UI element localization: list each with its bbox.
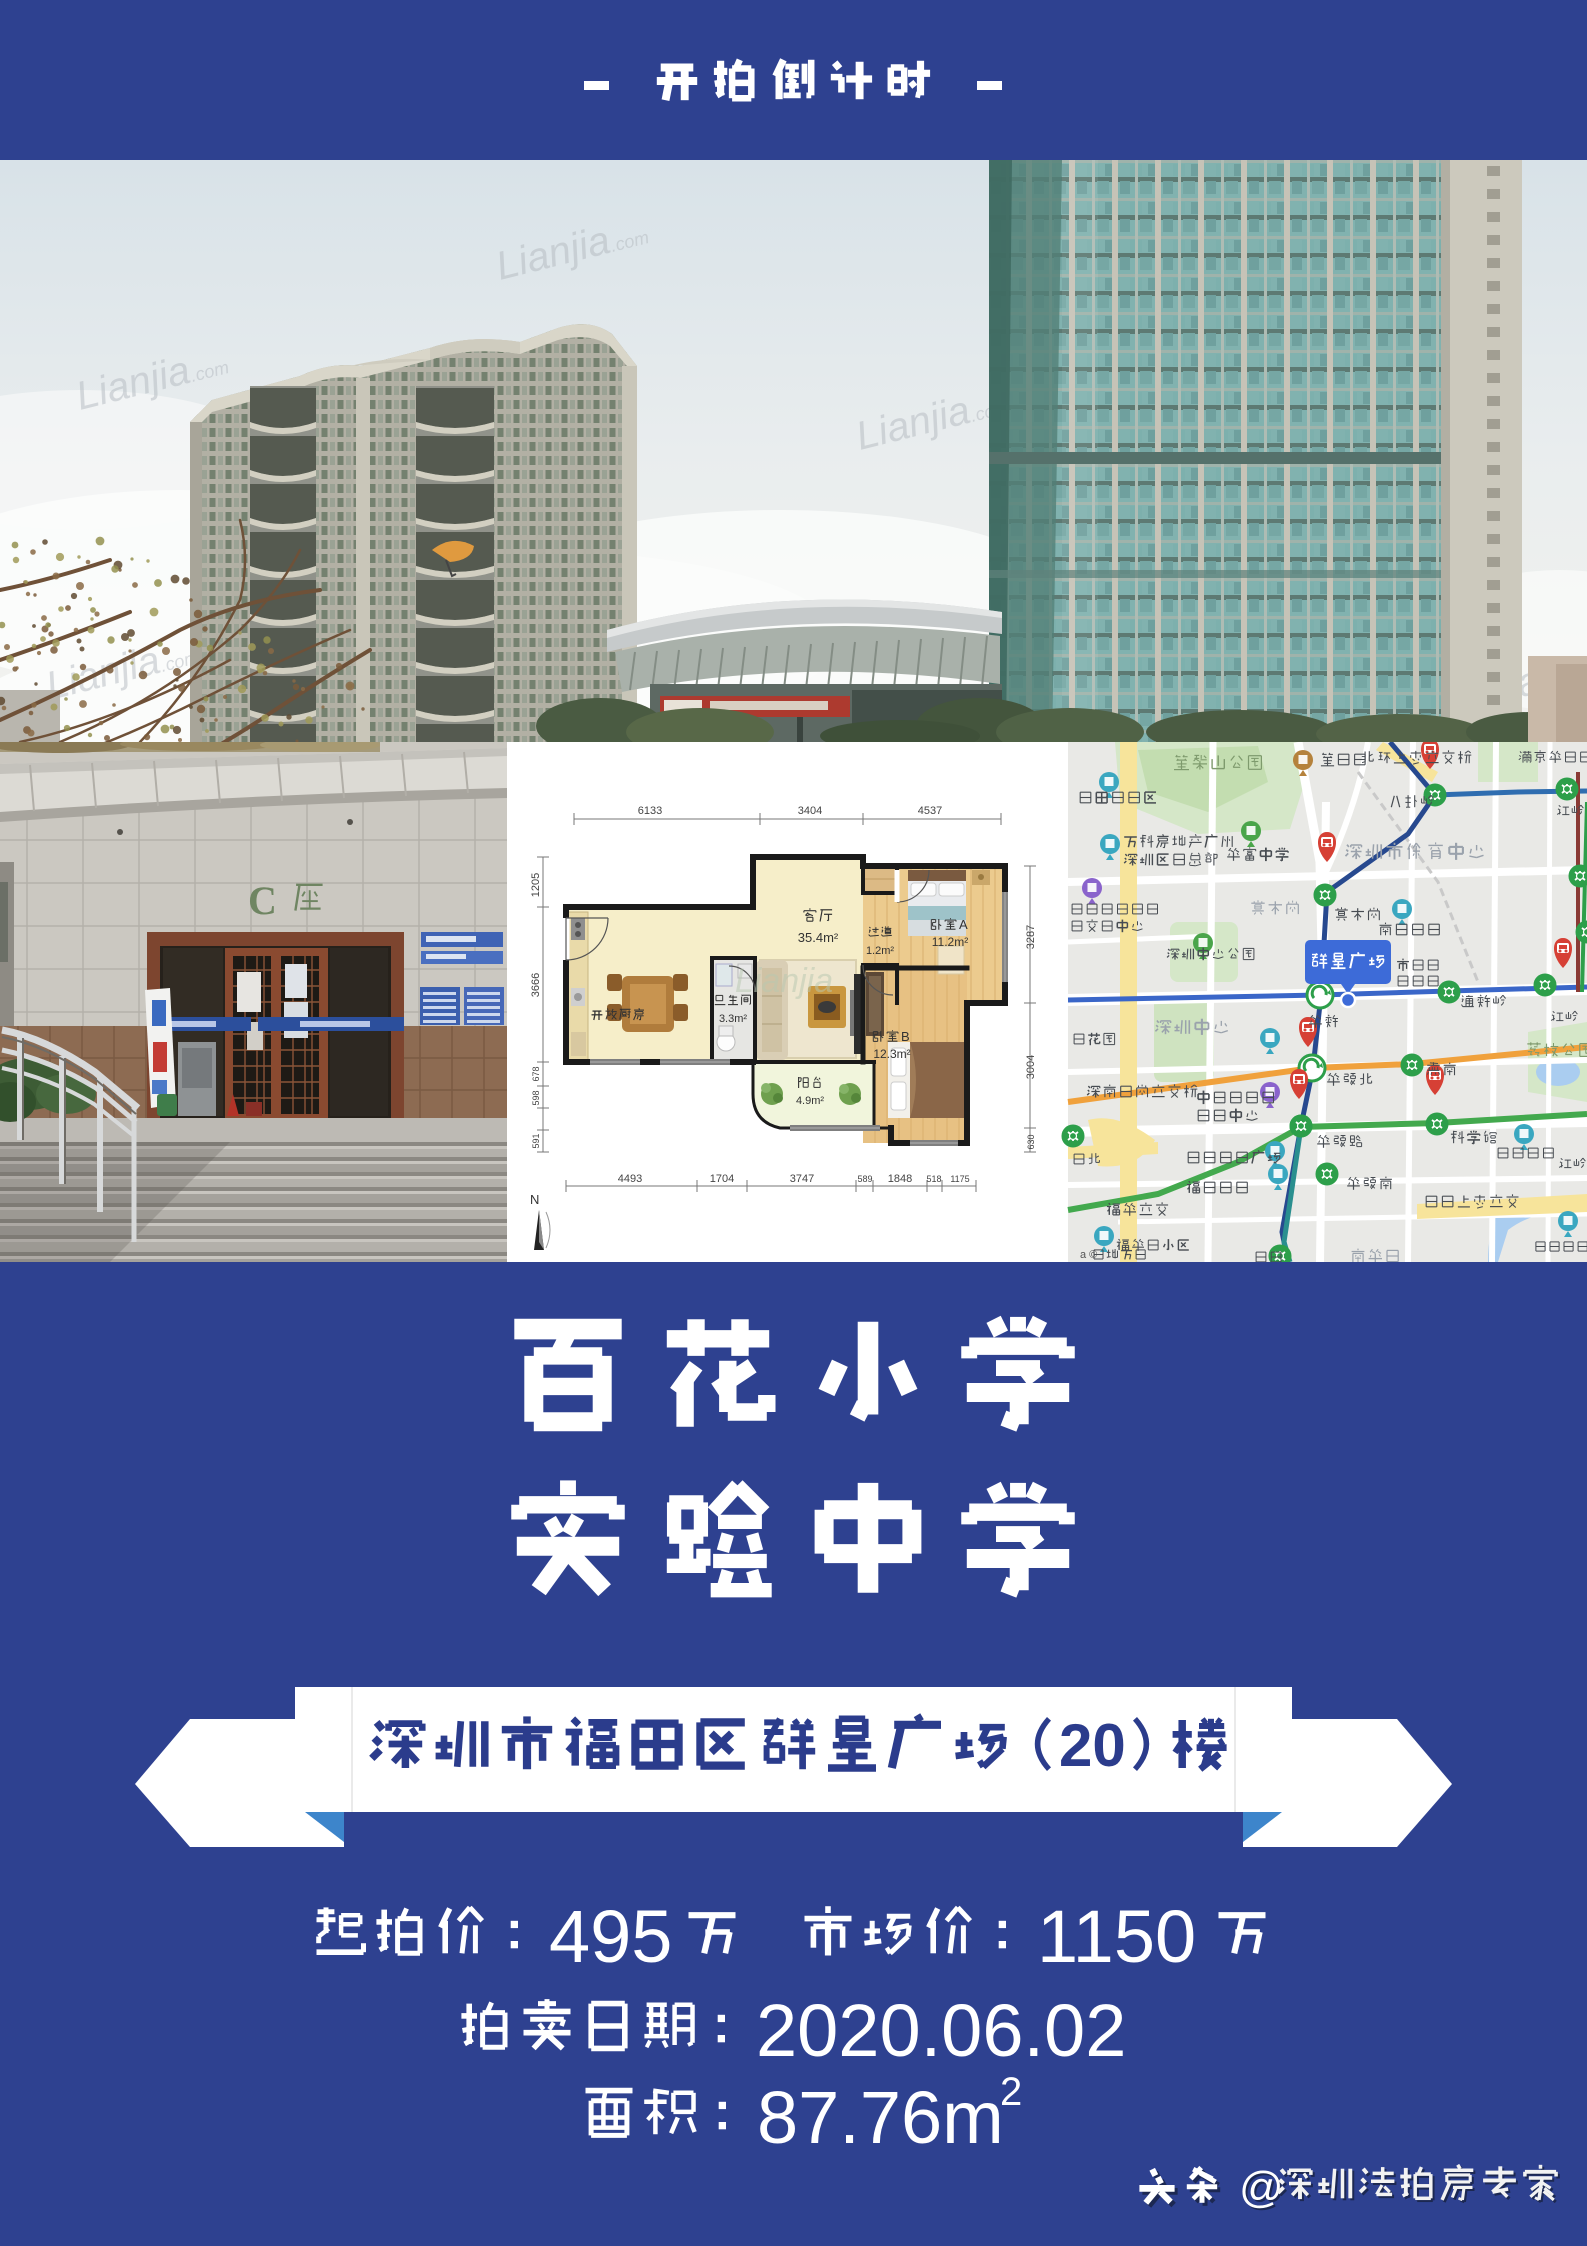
svg-text:589: 589 <box>857 1174 872 1184</box>
svg-text:4.9m²: 4.9m² <box>796 1095 824 1107</box>
svg-text:591: 591 <box>531 1133 541 1148</box>
svg-text:Lianjia: Lianjia <box>735 962 833 1000</box>
svg-text:1175: 1175 <box>950 1174 969 1184</box>
svg-text:B: B <box>901 1029 910 1044</box>
svg-text:1205: 1205 <box>530 873 542 897</box>
svg-text:a ©: a © <box>1080 1249 1097 1261</box>
svg-text:20: 20 <box>1059 1712 1126 1779</box>
svg-text:C: C <box>248 878 277 923</box>
svg-text:1704: 1704 <box>710 1173 734 1185</box>
svg-text:87.76m: 87.76m <box>757 2076 1004 2159</box>
svg-text:12.3m²: 12.3m² <box>873 1047 910 1061</box>
svg-text:598: 598 <box>531 1090 541 1105</box>
svg-text:678: 678 <box>531 1066 541 1081</box>
svg-text:2020.06.02: 2020.06.02 <box>756 1989 1126 2072</box>
svg-text:3004: 3004 <box>1025 1055 1037 1079</box>
svg-text:2: 2 <box>1000 2070 1022 2114</box>
svg-text:518: 518 <box>926 1174 941 1184</box>
svg-text:4493: 4493 <box>618 1173 642 1185</box>
svg-text:A: A <box>959 917 968 932</box>
svg-text:3666: 3666 <box>530 973 542 997</box>
svg-text:1.2m²: 1.2m² <box>866 945 894 957</box>
svg-text:3404: 3404 <box>798 805 822 817</box>
svg-text:630: 630 <box>1026 1134 1036 1149</box>
svg-text:@: @ <box>1239 2163 1284 2212</box>
svg-text:35.4m²: 35.4m² <box>798 930 839 945</box>
svg-text:3.3m²: 3.3m² <box>719 1013 747 1025</box>
svg-text:1848: 1848 <box>888 1173 912 1185</box>
svg-text:4537: 4537 <box>918 805 942 817</box>
svg-text:495: 495 <box>549 1895 672 1978</box>
svg-text:N: N <box>530 1192 539 1207</box>
svg-text:1150: 1150 <box>1037 1895 1196 1978</box>
svg-text:11.2m²: 11.2m² <box>932 935 968 949</box>
svg-text:3747: 3747 <box>790 1173 814 1185</box>
svg-text:3287: 3287 <box>1025 925 1037 949</box>
svg-text:6133: 6133 <box>638 805 662 817</box>
